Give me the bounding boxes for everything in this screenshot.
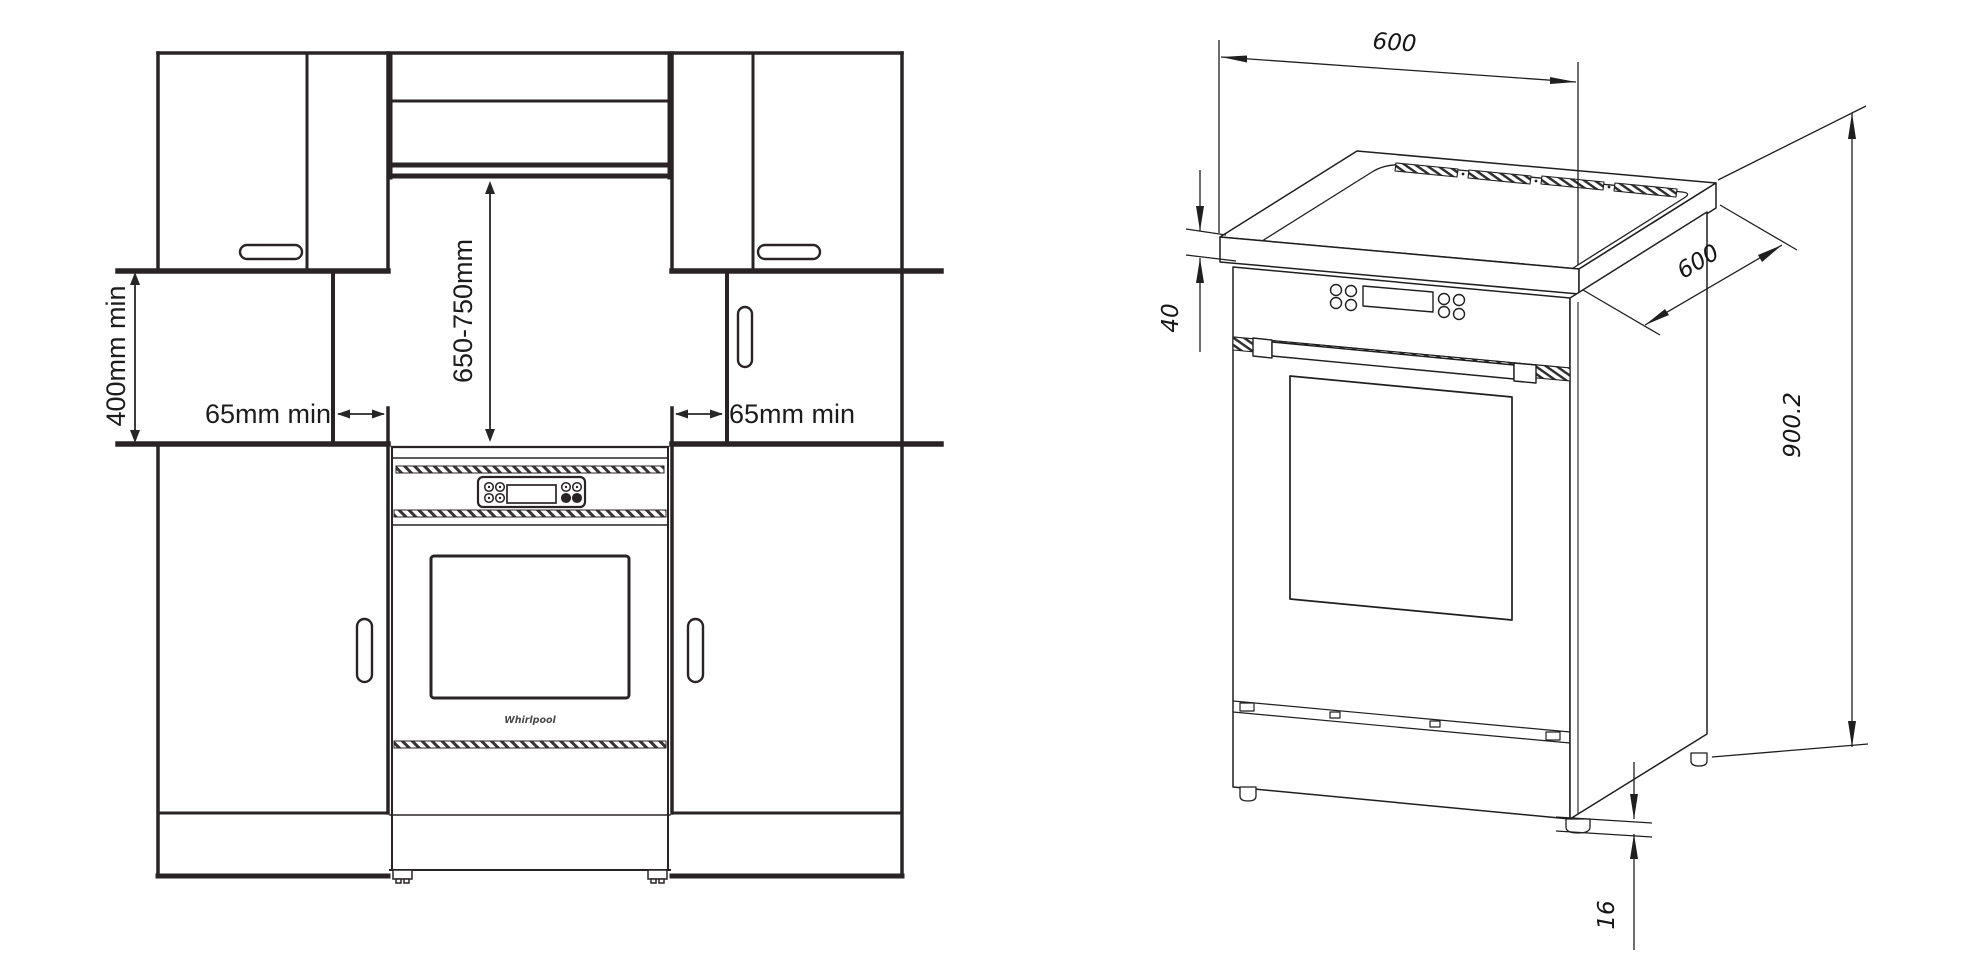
wall-cabinet-handle-right xyxy=(758,245,820,259)
kitchen-front-view: Whirlpool 400mm min 650-750mm xyxy=(101,53,941,883)
cooker-side-face xyxy=(1570,212,1707,819)
brand-logo: Whirlpool xyxy=(504,715,556,726)
dim-label-worktop-edge: 40 xyxy=(1158,303,1184,332)
base-cabinet-handle-left xyxy=(357,619,372,682)
cooktop-rear-vent xyxy=(396,466,664,473)
wall-cabinet-handle-left xyxy=(240,245,302,259)
control-panel xyxy=(478,477,585,507)
dim-label-height: 900.2 xyxy=(1780,392,1806,458)
technical-drawing: Whirlpool 400mm min 650-750mm xyxy=(0,0,1978,968)
base-cabinet-handle-right xyxy=(688,619,703,682)
dim-label-side-clearance: 400mm min xyxy=(101,285,131,426)
cooker-feet xyxy=(393,870,667,883)
cooker-front-view: Whirlpool xyxy=(390,447,670,883)
lower-vent-strip xyxy=(394,741,666,748)
oven-door-window xyxy=(431,556,629,698)
page: Whirlpool 400mm min 650-750mm xyxy=(0,0,1978,968)
cabinet-structure xyxy=(118,53,941,876)
iso-cooker-body xyxy=(1220,151,1716,833)
upper-vent-strip xyxy=(394,510,666,517)
dim-label-hood-clearance: 650-750mm xyxy=(448,239,478,383)
cooker-isometric-view: 600 600 900.2 40 xyxy=(1158,29,1868,950)
dim-label-width: 600 xyxy=(1372,29,1418,58)
dim-label-gap-right: 65mm min xyxy=(729,399,855,429)
mid-cabinet-handle-right xyxy=(738,307,752,367)
display xyxy=(507,485,556,503)
dim-label-gap-left: 65mm min xyxy=(205,399,331,429)
dim-label-foot-height: 16 xyxy=(1594,900,1620,929)
